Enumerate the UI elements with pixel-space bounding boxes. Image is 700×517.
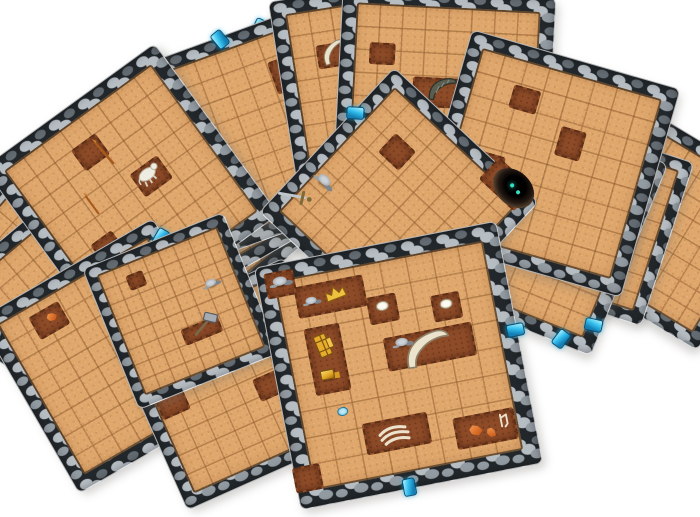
rib-bones-icon (377, 421, 411, 446)
tile-pile-photo (0, 0, 700, 517)
dungeon-tile-18 (254, 221, 544, 511)
spear-icon (89, 137, 116, 167)
hammer-icon (190, 311, 219, 338)
rune-tile-icon (496, 410, 513, 429)
gem-marker (346, 106, 365, 120)
dirt-patch (292, 462, 324, 493)
gem-marker (505, 322, 525, 338)
gem-marker (583, 317, 603, 333)
gem-marker (209, 29, 231, 51)
spear-icon (80, 192, 102, 217)
dirt-patch (369, 42, 396, 65)
gem-marker (402, 477, 418, 497)
